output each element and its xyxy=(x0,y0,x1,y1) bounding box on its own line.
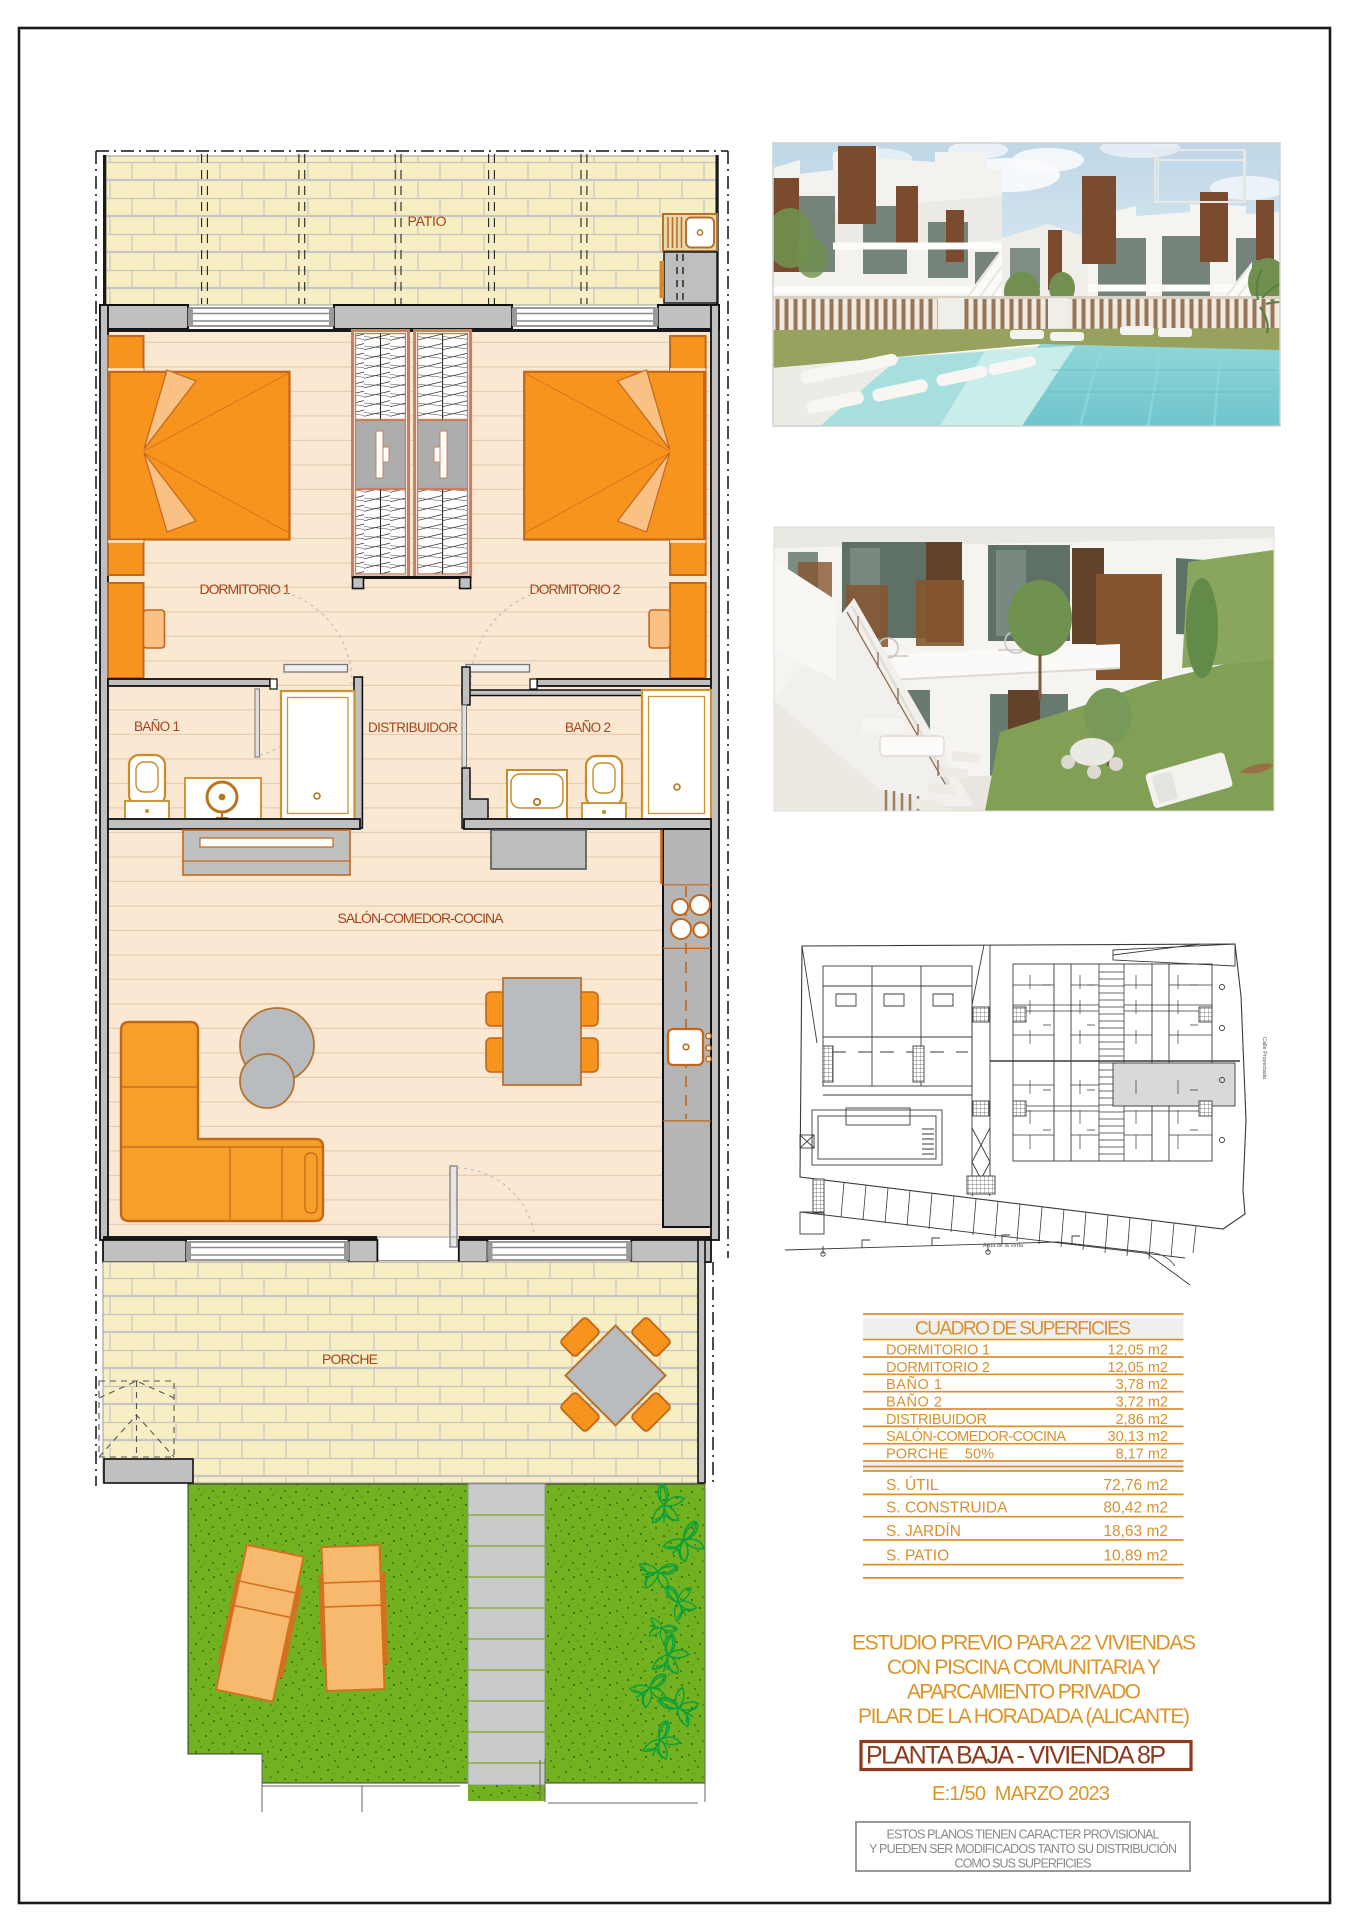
svg-text:BAÑO 2: BAÑO 2 xyxy=(886,1394,942,1411)
svg-text:3,72 m2: 3,72 m2 xyxy=(1116,1395,1168,1411)
svg-text:3,78 m2: 3,78 m2 xyxy=(1116,1377,1168,1393)
svg-text:PILAR DE LA HORADADA (ALICANTE: PILAR DE LA HORADADA (ALICANTE) xyxy=(858,1705,1190,1728)
svg-text:18,63 m2: 18,63 m2 xyxy=(1103,1523,1168,1540)
svg-text:DISTRIBUIDOR: DISTRIBUIDOR xyxy=(886,1412,987,1428)
svg-text:BAÑO 1: BAÑO 1 xyxy=(886,1376,942,1393)
svg-text:ESTOS PLANOS TIENEN CARACTER P: ESTOS PLANOS TIENEN CARACTER PROVISIONAL xyxy=(887,1828,1160,1842)
svg-text:SALÓN-COMEDOR-COCINA: SALÓN-COMEDOR-COCINA xyxy=(338,910,505,926)
svg-text:10,89 m2: 10,89 m2 xyxy=(1103,1548,1168,1565)
svg-text:PORCHE 50%: PORCHE 50% xyxy=(886,1447,994,1463)
svg-text:BAÑO 2: BAÑO 2 xyxy=(565,720,611,735)
svg-text:30,13 m2: 30,13 m2 xyxy=(1108,1429,1168,1445)
svg-text:S. CONSTRUIDA: S. CONSTRUIDA xyxy=(886,1500,1008,1517)
svg-text:Calle Proyectada: Calle Proyectada xyxy=(1261,1037,1267,1080)
svg-text:Avda de la Verta: Avda de la Verta xyxy=(983,1243,1024,1249)
svg-text:CUADRO DE SUPERFICIES: CUADRO DE SUPERFICIES xyxy=(915,1319,1131,1340)
svg-text:DORMITORIO 1: DORMITORIO 1 xyxy=(200,581,291,597)
svg-text:DORMITORIO 2: DORMITORIO 2 xyxy=(886,1360,990,1376)
svg-text:COMO SUS SUPERFICIES: COMO SUS SUPERFICIES xyxy=(955,1857,1092,1871)
svg-text:72,76 m2: 72,76 m2 xyxy=(1103,1477,1168,1494)
svg-text:SALÓN-COMEDOR-COCINA: SALÓN-COMEDOR-COCINA xyxy=(886,1428,1066,1445)
svg-text:PLANTA BAJA - VIVIENDA 8P: PLANTA BAJA - VIVIENDA 8P xyxy=(866,1742,1166,1770)
svg-text:S. PATIO: S. PATIO xyxy=(886,1548,949,1565)
svg-text:S. JARDÍN: S. JARDÍN xyxy=(886,1523,961,1540)
svg-text:APARCAMIENTO PRIVADO: APARCAMIENTO PRIVADO xyxy=(907,1681,1141,1704)
svg-text:DORMITORIO 1: DORMITORIO 1 xyxy=(886,1343,990,1359)
svg-text:PORCHE: PORCHE xyxy=(322,1351,378,1367)
svg-text:DISTRIBUIDOR: DISTRIBUIDOR xyxy=(368,720,458,735)
svg-text:Y PUEDEN SER MODIFICADOS TANTO: Y PUEDEN SER MODIFICADOS TANTO SU DISTRI… xyxy=(869,1841,1177,1856)
svg-text:8,17 m2: 8,17 m2 xyxy=(1116,1447,1168,1463)
svg-text:BAÑO 1: BAÑO 1 xyxy=(134,719,180,734)
svg-text:ESTUDIO PREVIO PARA 22 VIVIEND: ESTUDIO PREVIO PARA 22 VIVIENDAS xyxy=(852,1632,1196,1655)
svg-text:E:1/50 MARZO 2023: E:1/50 MARZO 2023 xyxy=(932,1783,1110,1805)
svg-text:DORMITORIO 2: DORMITORIO 2 xyxy=(530,581,621,597)
svg-text:S. ÚTIL: S. ÚTIL xyxy=(886,1477,939,1494)
svg-text:CON PISCINA COMUNITARIA Y: CON PISCINA COMUNITARIA Y xyxy=(887,1656,1161,1679)
svg-text:12,05 m2: 12,05 m2 xyxy=(1108,1343,1168,1359)
svg-text:2,86 m2: 2,86 m2 xyxy=(1116,1412,1168,1428)
svg-text:PATIO: PATIO xyxy=(408,213,447,229)
svg-text:80,42 m2: 80,42 m2 xyxy=(1103,1500,1168,1517)
svg-text:12,05 m2: 12,05 m2 xyxy=(1108,1360,1168,1376)
